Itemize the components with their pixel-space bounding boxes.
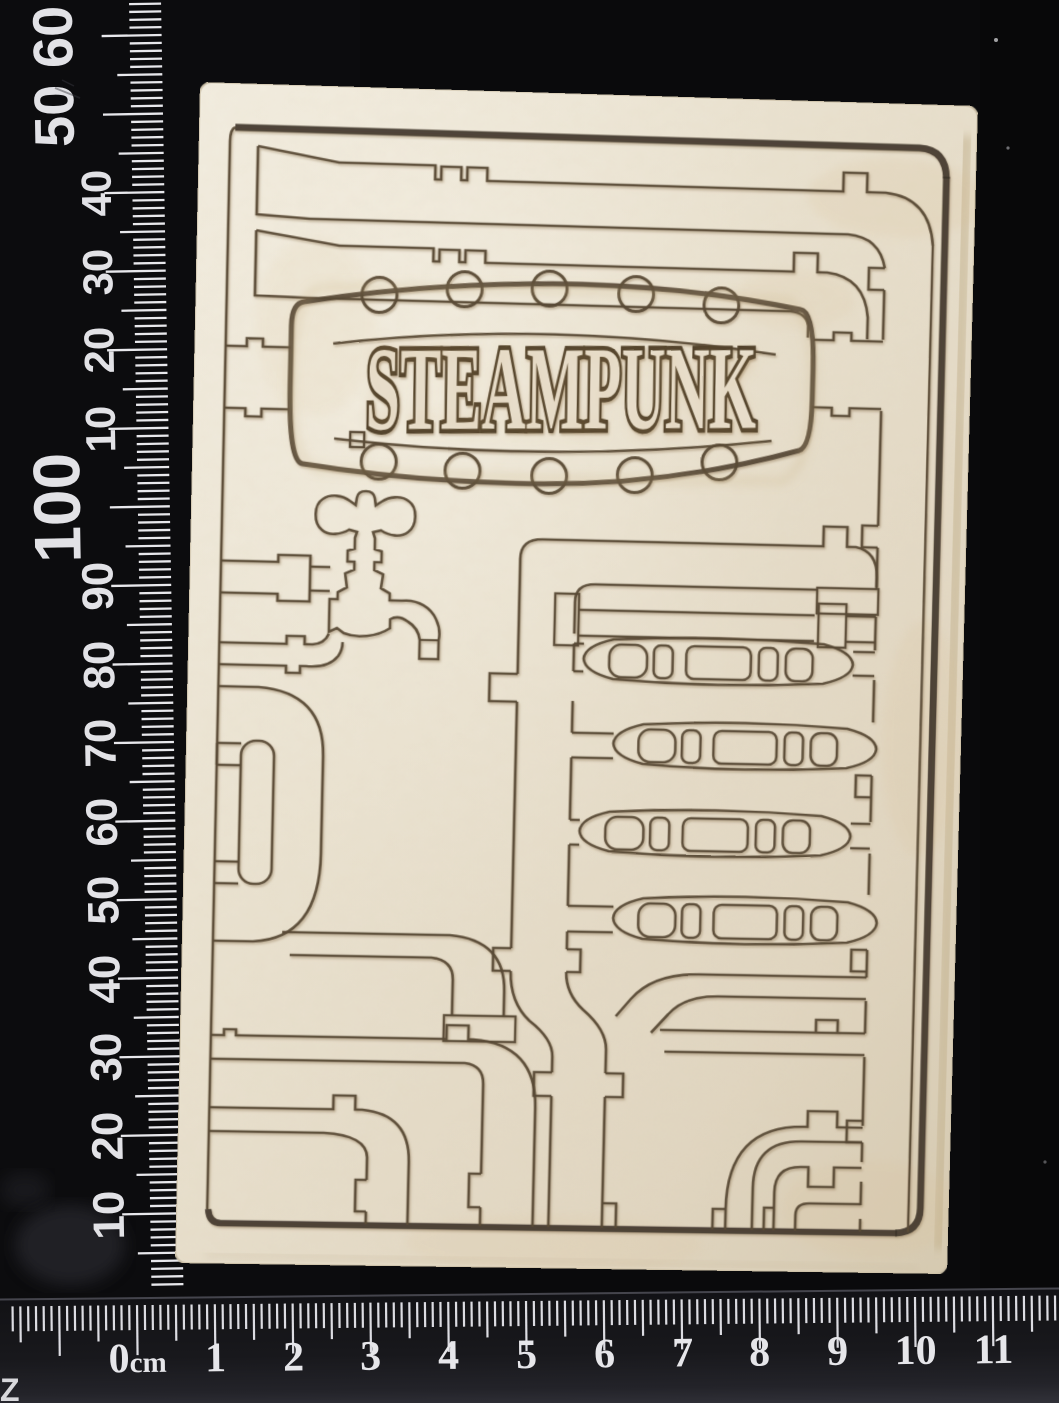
svg-text:11: 11	[973, 1327, 1013, 1373]
svg-text:70: 70	[76, 718, 126, 768]
svg-text:1: 1	[205, 1335, 226, 1381]
svg-text:10: 10	[77, 405, 125, 453]
svg-text:50: 50	[22, 84, 86, 147]
svg-text:9: 9	[827, 1329, 848, 1375]
svg-text:2: 2	[283, 1334, 304, 1380]
svg-text:90: 90	[73, 561, 123, 611]
svg-text:30: 30	[74, 248, 122, 296]
svg-text:4: 4	[438, 1333, 459, 1379]
svg-text:30: 30	[82, 1032, 132, 1082]
svg-text:3: 3	[360, 1334, 381, 1380]
svg-text:50: 50	[79, 875, 129, 925]
svg-text:5: 5	[516, 1332, 537, 1378]
svg-text:20: 20	[75, 326, 123, 374]
svg-text:40: 40	[80, 954, 130, 1004]
svg-text:10: 10	[84, 1190, 134, 1240]
svg-text:STEAMPUNK: STEAMPUNK	[365, 320, 758, 459]
svg-text:10: 10	[894, 1328, 936, 1374]
svg-text:Z: Z	[0, 1372, 20, 1403]
svg-text:20: 20	[83, 1111, 133, 1161]
svg-text:40: 40	[72, 169, 120, 217]
svg-text:60: 60	[21, 5, 85, 68]
svg-text:100: 100	[19, 452, 95, 563]
svg-text:60: 60	[77, 797, 127, 847]
svg-text:7: 7	[672, 1330, 693, 1376]
svg-text:8: 8	[749, 1329, 770, 1375]
svg-text:80: 80	[75, 640, 125, 690]
svg-text:6: 6	[594, 1331, 615, 1377]
